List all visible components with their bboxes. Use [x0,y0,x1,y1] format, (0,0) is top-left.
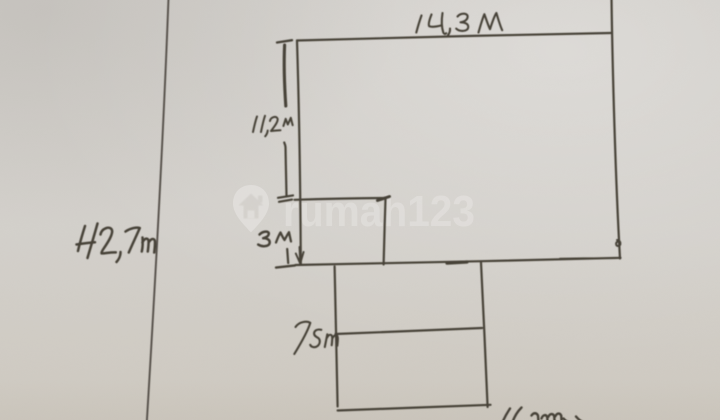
svg-text:rumah123: rumah123 [283,187,475,236]
